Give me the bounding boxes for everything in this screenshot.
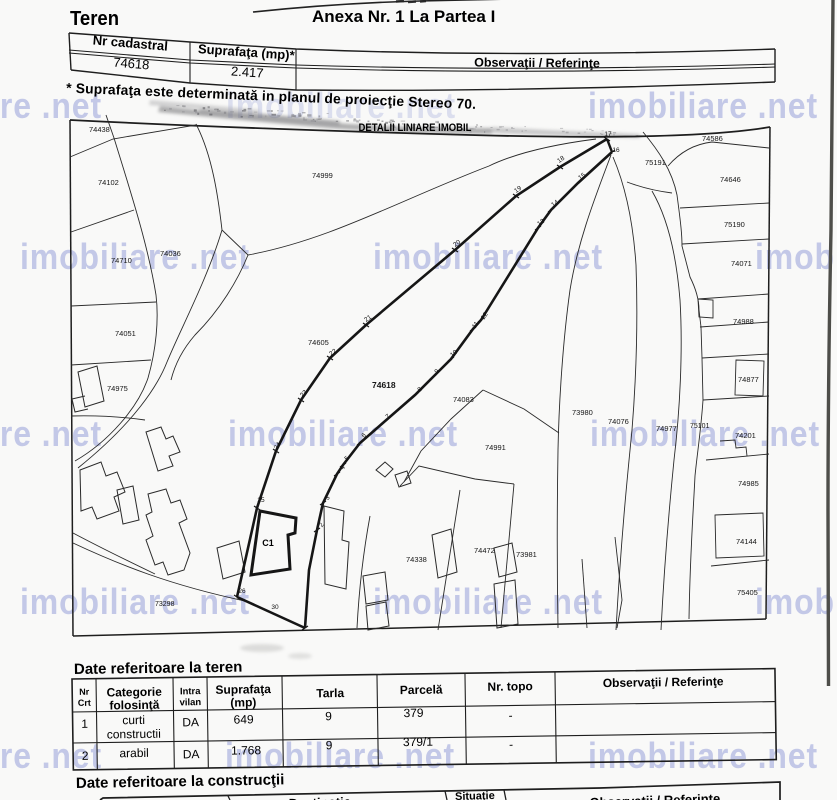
svg-text:74051: 74051: [115, 329, 136, 338]
svg-text:imobiliare .net: imobiliare .net: [373, 236, 603, 277]
svg-text:DA: DA: [183, 747, 200, 761]
svg-text:74201: 74201: [735, 431, 756, 440]
svg-text:imobiliare .net: imobiliare .net: [20, 236, 250, 277]
svg-text:74977: 74977: [656, 424, 677, 433]
svg-text:imobiliare .net: imobiliare .net: [0, 413, 102, 454]
svg-text:imobiliare .net: imobiliare .net: [588, 85, 818, 126]
svg-text:(mp): (mp): [230, 695, 256, 709]
svg-text:74618: 74618: [372, 380, 396, 390]
svg-text:Observaţii / Referinţe: Observaţii / Referinţe: [474, 55, 600, 70]
svg-text:73980: 73980: [572, 408, 593, 417]
svg-text:74975: 74975: [107, 384, 128, 393]
svg-text:Situaţie: Situaţie: [455, 790, 495, 800]
svg-text:Nr: Nr: [79, 687, 90, 697]
svg-text:75191: 75191: [645, 158, 666, 167]
svg-text:26: 26: [238, 588, 246, 595]
svg-text:constructii: constructii: [107, 727, 161, 742]
svg-text:vilan: vilan: [179, 697, 201, 708]
svg-text:73298: 73298: [155, 601, 175, 608]
svg-text:folosinţă: folosinţă: [109, 698, 160, 713]
svg-text:DA: DA: [182, 715, 199, 729]
svg-text:379/1: 379/1: [403, 735, 434, 749]
svg-text:-: -: [508, 708, 512, 722]
svg-text:curti: curti: [122, 713, 145, 727]
svg-text:75101: 75101: [690, 423, 710, 430]
svg-text:9: 9: [326, 738, 333, 752]
svg-text:9: 9: [325, 709, 332, 723]
svg-text:74877: 74877: [738, 375, 759, 384]
svg-text:16: 16: [612, 147, 620, 154]
svg-text:imobiliare .net: imobiliare .net: [588, 735, 818, 776]
svg-text:74985: 74985: [738, 479, 759, 488]
svg-text:74605: 74605: [308, 338, 329, 347]
svg-text:74618: 74618: [113, 55, 150, 73]
svg-text:25: 25: [257, 497, 265, 504]
svg-text:Parcelă: Parcelă: [400, 683, 443, 698]
svg-text:74144: 74144: [736, 537, 757, 546]
svg-text:75190: 75190: [724, 220, 745, 229]
svg-text:Crt: Crt: [78, 698, 91, 708]
svg-text:Date referitoare la teren: Date referitoare la teren: [74, 659, 243, 678]
svg-text:Teren: Teren: [70, 8, 119, 30]
svg-text:17: 17: [604, 131, 612, 138]
svg-text:74438: 74438: [89, 125, 110, 134]
svg-text:74646: 74646: [720, 175, 741, 184]
svg-text:imobiliare .net: imobiliare .net: [20, 581, 250, 622]
svg-text:74071: 74071: [731, 259, 752, 268]
svg-text:379: 379: [403, 706, 424, 720]
svg-text:Nr. topo: Nr. topo: [487, 679, 533, 694]
svg-text:Observaţii / Referinţe: Observaţii / Referinţe: [603, 674, 724, 690]
svg-text:2: 2: [82, 749, 89, 763]
svg-text:74999: 74999: [312, 171, 333, 180]
svg-text:2.417: 2.417: [231, 63, 265, 80]
svg-text:74988: 74988: [733, 317, 754, 326]
svg-text:Tarla: Tarla: [316, 686, 344, 700]
svg-text:74710: 74710: [111, 256, 132, 265]
svg-text:73981: 73981: [516, 550, 537, 559]
svg-text:75405: 75405: [737, 588, 758, 597]
svg-text:74036: 74036: [160, 249, 181, 258]
svg-text:Intra: Intra: [180, 686, 201, 697]
svg-text:74586: 74586: [702, 134, 723, 143]
svg-text:649: 649: [234, 712, 255, 726]
svg-text:74076: 74076: [608, 417, 629, 426]
svg-text:arabil: arabil: [119, 746, 149, 760]
svg-text:74083: 74083: [453, 395, 474, 404]
svg-text:imobiliare .net: imobiliare .net: [755, 581, 837, 622]
svg-text:Anexa Nr. 1 La Partea I: Anexa Nr. 1 La Partea I: [312, 7, 495, 26]
svg-text:1: 1: [81, 717, 88, 731]
svg-text:74102: 74102: [98, 178, 119, 187]
svg-text:imobiliare .net: imobiliare .net: [755, 236, 837, 277]
svg-text:74338: 74338: [406, 555, 427, 564]
svg-text:74472: 74472: [474, 546, 495, 555]
svg-text:-: -: [509, 737, 513, 751]
svg-text:Destinaţie: Destinaţie: [289, 794, 352, 800]
svg-text:imobiliare .net: imobiliare .net: [373, 581, 603, 622]
svg-text:30: 30: [271, 604, 279, 611]
svg-text:74991: 74991: [485, 443, 506, 452]
svg-text:Date referitoare la construcţi: Date referitoare la construcţii: [76, 771, 285, 792]
svg-text:1.768: 1.768: [231, 743, 262, 757]
svg-text:C1: C1: [262, 538, 274, 548]
